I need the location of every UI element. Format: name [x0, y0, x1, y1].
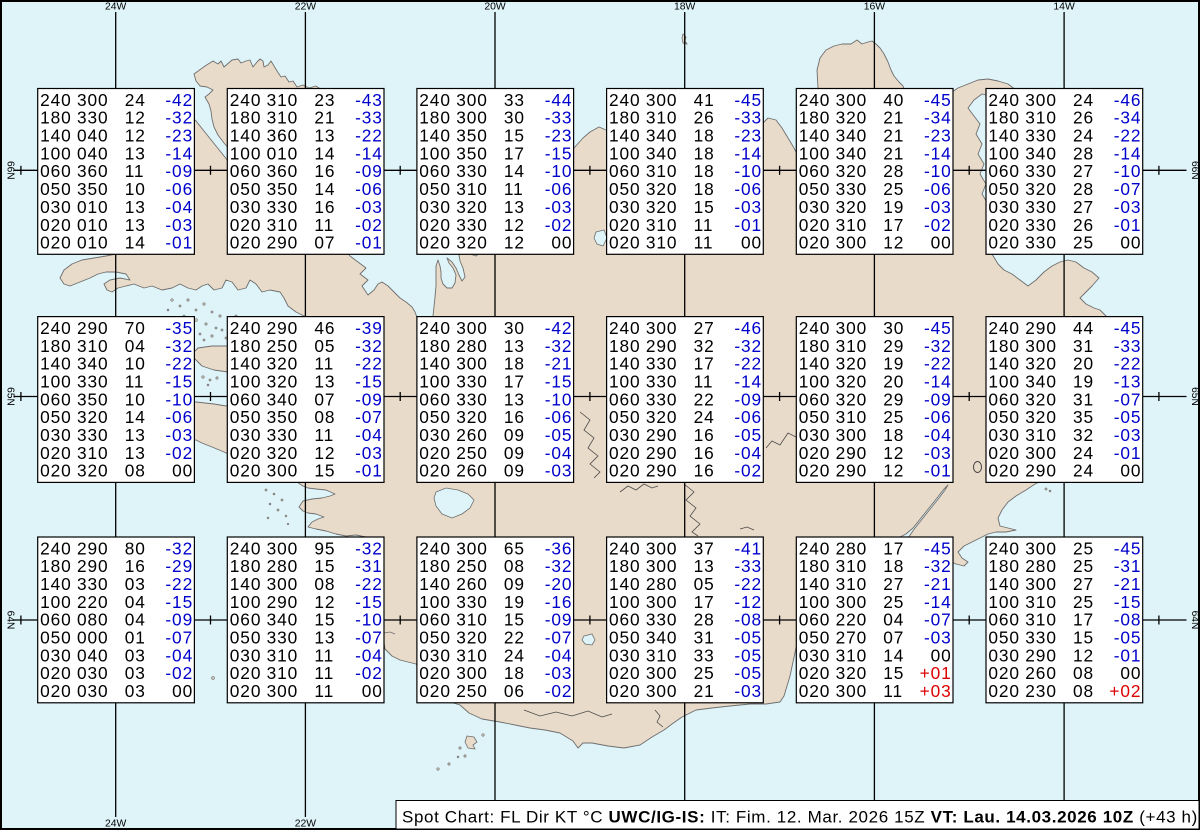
svg-text:24W: 24W [105, 819, 127, 830]
svg-text:64N: 64N [4, 611, 15, 630]
svg-text:14W: 14W [1053, 2, 1075, 13]
svg-text:65N: 65N [4, 387, 15, 406]
svg-text:22W: 22W [295, 819, 317, 830]
svg-text:22W: 22W [295, 2, 317, 13]
svg-text:20W: 20W [484, 2, 506, 13]
svg-text:66N: 66N [4, 161, 15, 180]
svg-text:18W: 18W [674, 2, 696, 13]
svg-text:24W: 24W [105, 2, 127, 13]
svg-text:Spot Chart: FL Dir KT °C UWC/I: Spot Chart: FL Dir KT °C UWC/IG-IS: IT: … [402, 808, 1198, 827]
svg-text:16W: 16W [864, 2, 886, 13]
